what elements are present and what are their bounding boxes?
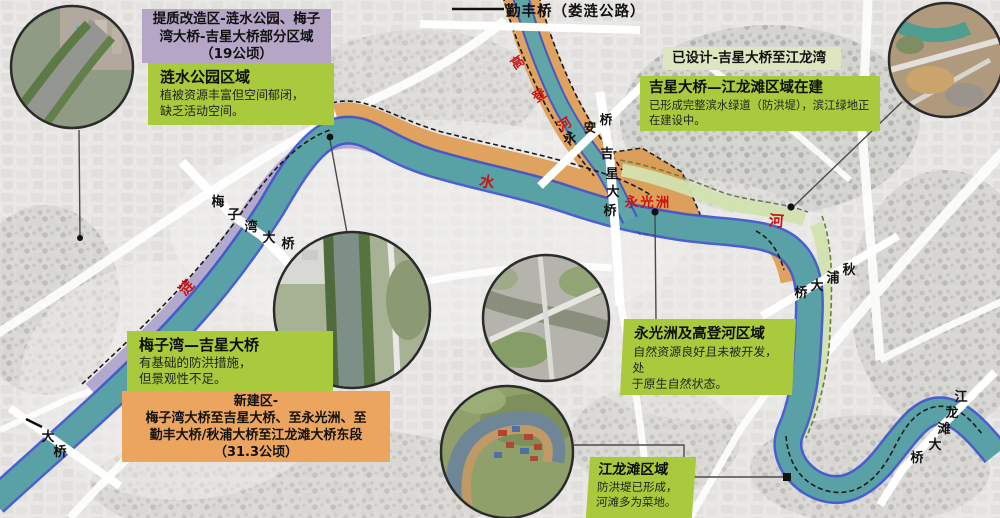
svg-text:桥: 桥 [603,203,617,219]
river-char-he: 河 [768,212,784,231]
tag-newbuild-line3: 勤丰大桥/秋浦大桥至江龙滩大桥东段 [122,427,390,444]
note-lianshui-park-body1: 植被资源丰富但空间郁闭， [160,87,326,103]
note-lianshui-park: 涟水公园区域 植被资源丰富但空间郁闭， 缺乏活动空间。 [148,63,334,125]
svg-text:桥: 桥 [794,285,808,301]
note-lianshui-park-body2: 缺乏活动空间。 [160,103,326,119]
svg-text:梅: 梅 [211,194,224,210]
svg-text:浦: 浦 [826,270,839,286]
tag-upgrade-line1: 提质改造区-涟水公园、梅子 [142,11,331,29]
svg-text:龙: 龙 [945,405,958,421]
note-jixing-body1: 已形成完整滨水绿道（防洪堤），滨江绿地正 [649,98,874,113]
svg-text:大: 大 [41,429,54,445]
note-yongguangzhou-gaodeng: 永光洲及高登河区域 自然资源良好且未被开发，处 于原生自然状态。 [620,319,796,395]
tag-designed: 已设计-吉星大桥至江龙湾 [663,47,841,70]
svg-text:秋: 秋 [842,262,856,278]
svg-text:永: 永 [563,130,577,145]
leader-yongguangzhou [655,214,656,320]
svg-text:江: 江 [954,389,967,405]
note-jixing-body2: 在建设中。 [649,113,874,128]
tag-upgrade-zone: 提质改造区-涟水公园、梅子 湾大桥-吉星大桥部分区域 （19公顷） [142,9,331,63]
note-yongguangzhou-body1: 自然资源良好且未被开发，处 [632,344,789,376]
svg-text:桥: 桥 [910,450,924,466]
svg-text:安: 安 [584,120,597,135]
tag-newbuild-line4: （31.3公顷） [122,444,390,461]
note-yongguangzhou-body2: 于原生自然状态。 [631,376,787,392]
svg-text:星: 星 [605,167,618,182]
note-meiziwan-title: 梅子湾—吉星大桥 [139,335,325,355]
svg-text:桥: 桥 [53,444,67,460]
svg-text:桥: 桥 [600,112,613,127]
svg-text:吉: 吉 [600,147,613,162]
photo-inset-junction [482,255,611,381]
yongguangzhou-label: 永光洲 [625,194,672,211]
note-jixing-jianglongtan: 吉星大桥—江龙滩区域在建 已形成完整滨水绿道（防洪堤），滨江绿地正 在建设中。 [640,76,880,131]
svg-text:大: 大 [810,278,823,294]
planning-map: 涟 水 河 高 登 河 永光洲 勤丰桥（娄涟公路） 梅 子 湾 大 桥 吉 星 … [0,0,1000,518]
note-jianglongtan-body1: 防洪堤已形成， [596,480,689,495]
note-meiziwan-jixing: 梅子湾—吉星大桥 有基础的防洪措施， 但景观性不足。 [127,331,333,391]
note-jianglongtan: 江龙滩区域 防洪堤已形成， 河滩多为菜地。 [586,457,696,518]
svg-text:大: 大 [606,184,619,200]
note-jianglongtan-title: 江龙滩区域 [598,461,691,480]
tag-upgrade-line3: （19公顷） [142,46,331,64]
tag-new-build-zone: 新建区- 梅子湾大桥至吉星大桥、至永光洲、至 勤丰大桥/秋浦大桥至江龙滩大桥东段… [122,391,390,462]
svg-text:大: 大 [928,437,941,453]
svg-text:大: 大 [262,230,275,246]
photo-inset-construction [889,3,1000,117]
tag-upgrade-line2: 湾大桥-吉星大桥部分区域 [142,29,331,47]
note-jixing-title: 吉星大桥—江龙滩区域在建 [649,79,874,98]
svg-text:子: 子 [227,208,240,223]
note-yongguangzhou-title: 永光洲及高登河区域 [634,324,790,344]
note-meiziwan-body2: 但景观性不足。 [139,371,325,387]
qinfeng-bridge-label: 勤丰桥（娄涟公路） [506,2,646,20]
leader-park-photo [79,130,80,238]
note-meiziwan-body1: 有基础的防洪措施， [139,355,325,371]
svg-text:桥: 桥 [281,236,295,252]
note-jianglongtan-body2: 河滩多为菜地。 [595,495,688,510]
note-lianshui-park-title: 涟水公园区域 [160,67,326,87]
tag-designed-label: 已设计-吉星大桥至江龙湾 [672,50,826,66]
svg-text:湾: 湾 [244,219,257,235]
tag-newbuild-line1: 新建区- [122,393,390,410]
svg-text:滩: 滩 [937,421,950,437]
tag-newbuild-line2: 梅子湾大桥至吉星大桥、至永光洲、至 [122,410,390,427]
